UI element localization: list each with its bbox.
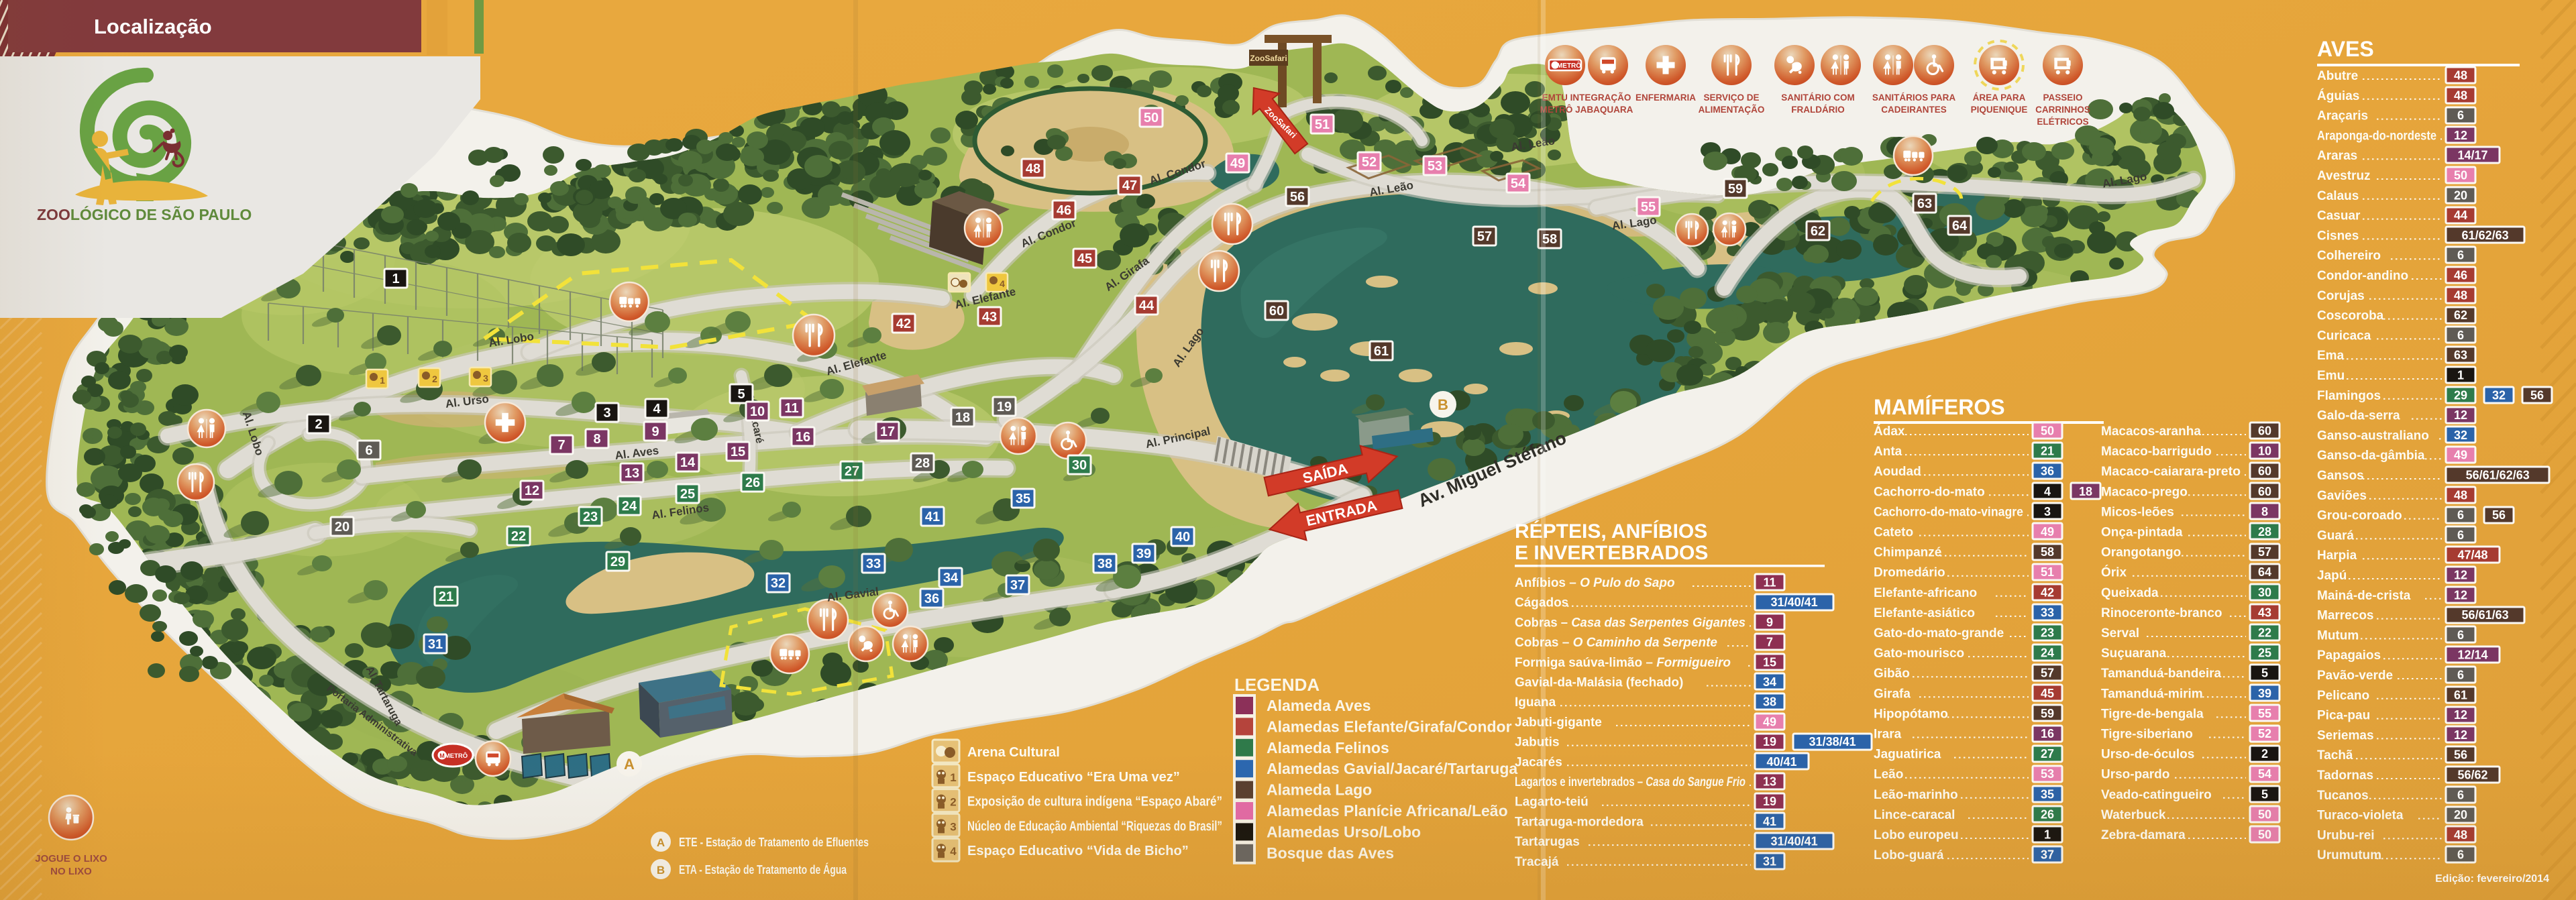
svg-text:57: 57: [1477, 229, 1492, 244]
svg-text:56: 56: [1290, 190, 1305, 205]
svg-text:ÁREA PARA: ÁREA PARA: [1973, 93, 2026, 103]
svg-text:36: 36: [2041, 465, 2054, 478]
svg-text:Grou-coroado: Grou-coroado: [2317, 509, 2402, 523]
svg-text:12: 12: [2454, 728, 2467, 742]
svg-text:SERVIÇO DE: SERVIÇO DE: [1703, 93, 1759, 103]
svg-text:56/61/62/63: 56/61/62/63: [2466, 469, 2530, 482]
svg-text:14: 14: [680, 455, 696, 470]
svg-text:METRÔ JABAQUARA: METRÔ JABAQUARA: [1540, 105, 1633, 115]
svg-text:46: 46: [2454, 269, 2467, 282]
svg-text:Colhereiro: Colhereiro: [2317, 249, 2381, 263]
svg-text:12: 12: [2454, 129, 2467, 142]
svg-text:60: 60: [2258, 465, 2271, 478]
svg-text:Pelicano: Pelicano: [2317, 689, 2369, 703]
svg-text:6: 6: [2457, 628, 2464, 642]
svg-text:Avestruz: Avestruz: [2317, 169, 2371, 183]
svg-text:Cachorro-do-mato: Cachorro-do-mato: [1874, 485, 1985, 499]
svg-text:Curicaca: Curicaca: [2317, 329, 2371, 343]
svg-text:29: 29: [2454, 388, 2467, 402]
svg-text:49: 49: [2454, 449, 2467, 462]
svg-text:FRALDÁRIO: FRALDÁRIO: [1791, 105, 1845, 115]
svg-text:Alameda Aves: Alameda Aves: [1267, 697, 1371, 714]
svg-text:Rinoceronte-branco: Rinoceronte-branco: [2101, 606, 2222, 620]
svg-text:25: 25: [680, 487, 695, 502]
svg-text:Onça-pintada: Onça-pintada: [2101, 526, 2183, 540]
svg-text:48: 48: [2454, 488, 2467, 502]
svg-text:Corujas: Corujas: [2317, 289, 2365, 303]
svg-text:Harpia: Harpia: [2317, 549, 2357, 563]
svg-text:21: 21: [439, 589, 453, 604]
svg-text:12: 12: [2454, 708, 2467, 722]
svg-text:8: 8: [593, 432, 600, 447]
svg-text:64: 64: [1952, 219, 1968, 233]
svg-text:31: 31: [428, 637, 443, 652]
svg-text:24: 24: [2041, 646, 2054, 660]
svg-text:Japú: Japú: [2317, 569, 2347, 583]
svg-text:Macaco-caiarara-preto: Macaco-caiarara-preto: [2101, 465, 2241, 479]
svg-text:Galo-da-serra: Galo-da-serra: [2317, 409, 2400, 423]
svg-text:4: 4: [2044, 485, 2051, 498]
svg-text:Ganso-australiano: Ganso-australiano: [2317, 429, 2429, 443]
svg-text:B: B: [1438, 396, 1448, 413]
svg-text:50: 50: [1144, 111, 1159, 125]
svg-text:Araponga-do-nordeste: Araponga-do-nordeste: [2317, 129, 2436, 143]
svg-text:4: 4: [653, 402, 661, 416]
svg-text:32: 32: [2454, 429, 2467, 442]
svg-text:Coscoroba: Coscoroba: [2317, 309, 2384, 323]
svg-text:SANITÁRIO COM: SANITÁRIO COM: [1781, 93, 1855, 103]
svg-text:41: 41: [925, 510, 940, 524]
svg-text:Gaviões: Gaviões: [2317, 489, 2367, 503]
svg-text:36: 36: [924, 592, 939, 606]
svg-text:Tigre-de-bengala: Tigre-de-bengala: [2101, 707, 2204, 721]
svg-text:Abutre: Abutre: [2317, 69, 2358, 83]
svg-text:34: 34: [1763, 675, 1776, 689]
svg-text:Águias: Águias: [2317, 89, 2359, 103]
svg-text:ZooSafari: ZooSafari: [1250, 54, 1287, 63]
svg-text:18: 18: [955, 410, 970, 425]
svg-text:25: 25: [2258, 646, 2271, 660]
svg-text:Elefante-africano: Elefante-africano: [1874, 586, 1977, 600]
svg-text:ENFERMARIA: ENFERMARIA: [1635, 93, 1696, 103]
svg-text:Tamanduá-mirim: Tamanduá-mirim: [2101, 687, 2203, 701]
svg-text:44: 44: [2454, 209, 2467, 222]
svg-text:1: 1: [392, 272, 399, 286]
svg-text:12: 12: [2454, 569, 2467, 582]
svg-text:Emu: Emu: [2317, 369, 2345, 383]
svg-text:56/61/63: 56/61/63: [2462, 608, 2509, 622]
svg-text:7: 7: [1766, 636, 1773, 649]
svg-text:32: 32: [2492, 388, 2506, 402]
svg-text:11: 11: [784, 401, 798, 416]
svg-text:52: 52: [2258, 727, 2271, 740]
svg-text:Macaco-barrigudo: Macaco-barrigudo: [2101, 445, 2212, 459]
svg-text:11: 11: [1763, 576, 1776, 589]
svg-text:3: 3: [2044, 505, 2051, 518]
svg-text:21: 21: [2041, 445, 2054, 458]
svg-text:63: 63: [1917, 196, 1932, 211]
svg-text:32: 32: [771, 576, 786, 591]
svg-text:1: 1: [380, 375, 385, 386]
svg-text:52: 52: [1362, 155, 1377, 170]
svg-text:Seriemas: Seriemas: [2317, 728, 2374, 742]
svg-text:51: 51: [1315, 117, 1330, 132]
svg-text:57: 57: [2258, 545, 2271, 559]
svg-text:33: 33: [2041, 606, 2054, 619]
svg-text:6: 6: [2457, 109, 2464, 122]
svg-text:PASSEIO: PASSEIO: [2043, 93, 2082, 103]
svg-text:22: 22: [511, 529, 526, 544]
svg-text:Cisnes: Cisnes: [2317, 229, 2359, 243]
svg-text:23: 23: [583, 510, 598, 524]
svg-text:59: 59: [1728, 182, 1743, 196]
svg-text:3: 3: [483, 373, 488, 384]
svg-text:Jabuti-gigante: Jabuti-gigante: [1515, 716, 1602, 730]
svg-text:23: 23: [2041, 626, 2054, 640]
svg-text:31/40/41: 31/40/41: [1771, 596, 1818, 609]
svg-text:16: 16: [2041, 727, 2054, 740]
svg-text:47/48: 47/48: [2457, 549, 2487, 562]
svg-text:2: 2: [315, 417, 322, 432]
svg-text:43: 43: [982, 310, 997, 325]
svg-text:18: 18: [2079, 485, 2092, 498]
svg-text:3: 3: [603, 406, 610, 420]
svg-text:54: 54: [1511, 176, 1526, 191]
svg-text:12: 12: [2454, 588, 2467, 602]
svg-text:33: 33: [866, 557, 881, 571]
svg-text:20: 20: [2454, 188, 2467, 202]
svg-text:Localização: Localização: [94, 15, 212, 38]
svg-text:16: 16: [796, 430, 810, 445]
svg-text:6: 6: [2457, 669, 2464, 682]
svg-text:2: 2: [432, 374, 437, 384]
svg-text:Macacos-aranha: Macacos-aranha: [2101, 425, 2201, 439]
svg-text:62: 62: [1811, 224, 1825, 239]
svg-text:28: 28: [915, 456, 930, 471]
svg-text:Aoudad: Aoudad: [1874, 465, 1921, 479]
svg-text:Papagaios: Papagaios: [2317, 649, 2381, 663]
svg-text:9: 9: [1766, 616, 1773, 629]
svg-text:PIQUENIQUE: PIQUENIQUE: [1971, 105, 2028, 115]
svg-text:34: 34: [943, 571, 959, 585]
svg-text:13: 13: [625, 466, 639, 481]
svg-text:Elefante-asiático: Elefante-asiático: [1874, 606, 1975, 620]
svg-text:56: 56: [2530, 388, 2544, 402]
svg-text:31/38/41: 31/38/41: [1809, 735, 1856, 748]
svg-text:Marrecos: Marrecos: [2317, 609, 2374, 623]
svg-text:28: 28: [2258, 525, 2271, 539]
svg-text:6: 6: [2457, 528, 2464, 542]
svg-text:Pavão-verde: Pavão-verde: [2317, 669, 2393, 683]
svg-text:CARRINHOS: CARRINHOS: [2035, 105, 2090, 115]
svg-text:64: 64: [2258, 565, 2271, 579]
svg-text:Órix: Órix: [2101, 565, 2127, 580]
svg-text:Mainá-de-crista: Mainá-de-crista: [2317, 589, 2411, 603]
svg-text:15: 15: [1763, 655, 1776, 669]
svg-text:Gato-do-mato-grande: Gato-do-mato-grande: [1874, 626, 2004, 640]
svg-text:LEGENDA: LEGENDA: [1234, 675, 1320, 695]
svg-text:48: 48: [1026, 162, 1040, 176]
svg-text:Hipopótamo: Hipopótamo: [1874, 707, 1948, 721]
svg-text:48: 48: [2454, 89, 2467, 102]
svg-text:49: 49: [1230, 156, 1245, 171]
svg-text:12/14: 12/14: [2457, 649, 2487, 662]
svg-text:59: 59: [2041, 707, 2054, 720]
svg-text:Araçaris: Araçaris: [2317, 109, 2368, 123]
svg-text:6: 6: [2457, 329, 2464, 342]
svg-text:5: 5: [737, 387, 745, 402]
svg-text:10: 10: [750, 404, 765, 419]
svg-text:57: 57: [2041, 667, 2054, 680]
svg-text:6: 6: [2457, 249, 2464, 262]
svg-text:19: 19: [1763, 735, 1776, 748]
svg-text:26: 26: [745, 475, 760, 490]
svg-text:12: 12: [2454, 408, 2467, 422]
svg-text:39: 39: [1136, 547, 1151, 561]
svg-text:8: 8: [2261, 505, 2268, 518]
svg-text:14/17: 14/17: [2457, 149, 2487, 162]
svg-text:62: 62: [2454, 308, 2467, 322]
svg-text:61/62/63: 61/62/63: [2462, 229, 2509, 242]
svg-text:Suçuarana: Suçuarana: [2101, 646, 2167, 661]
svg-text:ALIMENTAÇÃO: ALIMENTAÇÃO: [1699, 105, 1765, 115]
svg-text:Mutum: Mutum: [2317, 628, 2359, 642]
svg-text:Calaus: Calaus: [2317, 189, 2359, 203]
svg-text:63: 63: [2454, 349, 2467, 362]
svg-text:Micos-leões: Micos-leões: [2101, 505, 2174, 519]
svg-text:35: 35: [1016, 492, 1030, 506]
svg-text:Queixada: Queixada: [2101, 586, 2159, 600]
svg-text:19: 19: [997, 400, 1012, 414]
svg-text:Jabutis: Jabutis: [1515, 736, 1560, 750]
svg-text:Macaco-prego: Macaco-prego: [2101, 485, 2188, 499]
svg-text:Ganso-da-gâmbia: Ganso-da-gâmbia: [2317, 449, 2425, 463]
svg-text:Ádax: Ádax: [1874, 424, 1905, 439]
svg-text:48: 48: [2454, 288, 2467, 302]
svg-text:Anta: Anta: [1874, 445, 1902, 459]
svg-text:30: 30: [2258, 585, 2271, 599]
svg-text:60: 60: [2258, 425, 2271, 438]
svg-text:Pica-pau: Pica-pau: [2317, 709, 2370, 723]
svg-text:MAMÍFEROS: MAMÍFEROS: [1874, 395, 2005, 419]
svg-text:EMTU INTEGRAÇÃO: EMTU INTEGRAÇÃO: [1542, 93, 1631, 103]
svg-text:55: 55: [1641, 200, 1656, 215]
svg-text:Orangotango: Orangotango: [2101, 546, 2181, 560]
svg-text:Chimpanzé: Chimpanzé: [1874, 546, 1941, 560]
svg-text:61: 61: [2454, 688, 2467, 701]
svg-text:39: 39: [2258, 687, 2271, 700]
svg-text:46: 46: [1057, 203, 1071, 218]
svg-text:Guará: Guará: [2317, 528, 2354, 543]
svg-text:Tigre-siberiano: Tigre-siberiano: [2101, 728, 2193, 742]
svg-text:Gansos: Gansos: [2317, 469, 2364, 483]
svg-text:49: 49: [1763, 715, 1776, 728]
svg-text:Condor-andino: Condor-andino: [2317, 269, 2408, 283]
svg-text:Alamedas Elefante/Girafa/Condo: Alamedas Elefante/Girafa/Condor: [1267, 718, 1512, 735]
svg-text:Ema: Ema: [2317, 349, 2345, 363]
svg-text:45: 45: [2041, 687, 2054, 700]
svg-text:Irara: Irara: [1874, 728, 1902, 742]
svg-text:37: 37: [1010, 578, 1025, 593]
svg-text:1: 1: [2457, 369, 2464, 382]
svg-text:42: 42: [2041, 585, 2054, 599]
svg-text:ELÉTRICOS: ELÉTRICOS: [2037, 117, 2088, 127]
svg-text:Iguana: Iguana: [1515, 695, 1556, 710]
svg-text:AVES: AVES: [2317, 37, 2374, 61]
svg-text:38: 38: [1097, 557, 1112, 571]
svg-text:42: 42: [896, 317, 911, 331]
svg-text:60: 60: [2258, 485, 2271, 498]
svg-text:61: 61: [1374, 344, 1389, 359]
svg-text:47: 47: [1122, 178, 1137, 193]
svg-text:50: 50: [2041, 425, 2054, 438]
svg-text:53: 53: [1428, 159, 1442, 174]
svg-text:6: 6: [2457, 508, 2464, 522]
svg-text:30: 30: [1072, 458, 1087, 473]
svg-text:50: 50: [2454, 169, 2467, 182]
svg-text:Flamingos: Flamingos: [2317, 389, 2381, 403]
svg-text:20: 20: [335, 520, 350, 535]
svg-text:Cachorro-do-mato-vinagre: Cachorro-do-mato-vinagre: [1874, 505, 2023, 519]
svg-text:48: 48: [2454, 69, 2467, 82]
svg-text:15: 15: [731, 445, 745, 459]
svg-text:24: 24: [622, 499, 637, 514]
svg-text:5: 5: [2261, 667, 2268, 680]
svg-text:43: 43: [2258, 606, 2271, 619]
svg-text:22: 22: [2258, 626, 2271, 640]
svg-text:60: 60: [1269, 304, 1284, 319]
svg-text:38: 38: [1763, 695, 1776, 709]
svg-text:55: 55: [2258, 707, 2271, 720]
svg-text:56: 56: [2492, 508, 2506, 522]
svg-text:10: 10: [2258, 445, 2271, 458]
svg-text:12: 12: [525, 484, 539, 498]
svg-text:17: 17: [880, 425, 895, 439]
svg-text:Tamanduá-bandeira: Tamanduá-bandeira: [2101, 667, 2222, 681]
svg-text:CADEIRANTES: CADEIRANTES: [1881, 105, 1947, 115]
svg-text:40: 40: [1175, 530, 1190, 545]
svg-text:SANITÁRIOS PARA: SANITÁRIOS PARA: [1872, 93, 1956, 103]
svg-text:Gibão: Gibão: [1874, 667, 1910, 681]
svg-text:44: 44: [1139, 298, 1155, 313]
svg-text:Dromedário: Dromedário: [1874, 566, 1945, 580]
svg-text:Cobras – Casa das Serpentes Gi: Cobras – Casa das Serpentes Gigantes: [1515, 616, 1746, 630]
svg-text:58: 58: [2041, 545, 2054, 559]
svg-text:Formiga saúva-limão – Formigue: Formiga saúva-limão – Formigueiro: [1515, 656, 1731, 670]
svg-text:Cateto: Cateto: [1874, 526, 1913, 540]
svg-text:49: 49: [2041, 525, 2054, 539]
svg-text:Gato-mourisco: Gato-mourisco: [1874, 646, 1964, 661]
svg-text:Araras: Araras: [2317, 149, 2357, 163]
svg-text:METRÔ: METRÔ: [1557, 61, 1581, 70]
svg-text:9: 9: [651, 425, 659, 439]
svg-text:29: 29: [610, 555, 625, 569]
svg-text:45: 45: [1077, 251, 1092, 266]
svg-text:Serval: Serval: [2101, 626, 2139, 640]
svg-text:Girafa: Girafa: [1874, 687, 1911, 701]
svg-text:Casuar: Casuar: [2317, 209, 2361, 223]
svg-text:6: 6: [365, 443, 372, 458]
svg-text:51: 51: [2041, 565, 2054, 579]
svg-text:7: 7: [557, 438, 565, 453]
